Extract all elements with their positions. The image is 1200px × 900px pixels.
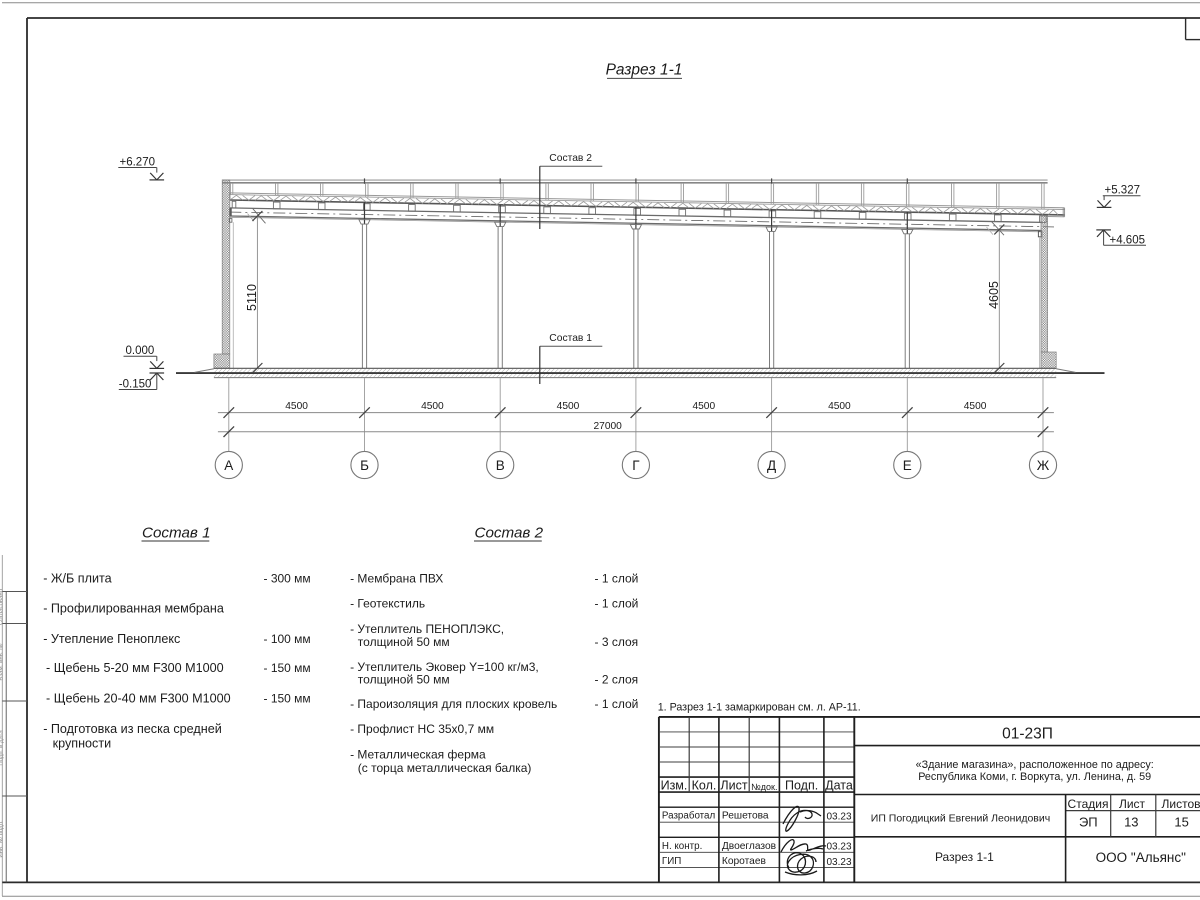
svg-text:ООО "Альянс": ООО "Альянс" [1096,850,1186,865]
svg-text:- 150 мм: - 150 мм [264,661,311,675]
svg-text:Двоеглазов: Двоеглазов [722,841,776,852]
svg-text:- Металлическая ферма: - Металлическая ферма [350,748,486,762]
svg-text:- Щебень 20-40 мм F300 М1000: - Щебень 20-40 мм F300 М1000 [46,692,231,706]
svg-text:А: А [224,458,233,473]
svg-text:4500: 4500 [421,401,444,412]
svg-text:27000: 27000 [594,421,623,432]
svg-text:4500: 4500 [557,401,580,412]
svg-text:- Профилированная мембрана: - Профилированная мембрана [43,602,224,616]
svg-text:Состав 2: Состав 2 [549,153,592,164]
svg-text:1. Разрез 1-1 замаркирован см.: 1. Разрез 1-1 замаркирован см. л. АР-11. [658,701,861,713]
svg-text:ГИП: ГИП [662,856,681,867]
svg-text:Лист: Лист [720,778,747,792]
svg-text:03.23: 03.23 [826,811,851,822]
svg-text:ЭП: ЭП [1079,814,1098,829]
svg-text:- Пароизоляция для плоских кро: - Пароизоляция для плоских кровель [350,697,557,711]
svg-text:крупности: крупности [53,737,112,751]
svg-text:03.23: 03.23 [826,842,851,853]
svg-text:- 1 слой: - 1 слой [595,697,639,711]
svg-text:Разрез 1-1: Разрез 1-1 [935,850,994,864]
svg-text:- Геотекстиль: - Геотекстиль [350,597,425,611]
svg-text:Инв. № подл.: Инв. № подл. [0,820,5,858]
svg-text:+4.605: +4.605 [1110,234,1146,246]
svg-text:4500: 4500 [285,401,308,412]
svg-text:4500: 4500 [692,401,715,412]
svg-text:(с торца металлическая балка): (с торца металлическая балка) [358,761,532,775]
svg-text:Подп.: Подп. [785,778,818,792]
svg-text:- Утеплитель ПЕНОПЛЭКС,: - Утеплитель ПЕНОПЛЭКС, [350,622,504,636]
svg-text:4500: 4500 [828,401,851,412]
svg-text:Стадия: Стадия [1068,797,1109,811]
svg-text:Ж: Ж [1037,458,1050,473]
svg-text:Листов: Листов [1162,797,1200,811]
svg-text:0.000: 0.000 [126,345,155,357]
svg-text:- Ж/Б плита: - Ж/Б плита [43,572,111,586]
svg-text:- 3 слоя: - 3 слоя [595,635,639,649]
svg-text:4605: 4605 [987,281,1001,309]
svg-text:Состав 1: Состав 1 [549,333,592,344]
svg-text:Состав 1: Состав 1 [142,525,211,542]
svg-text:В: В [496,458,505,473]
svg-text:- 100 мм: - 100 мм [264,632,311,646]
svg-text:Лист: Лист [1119,797,1146,811]
svg-text:№док.: №док. [751,782,777,792]
svg-text:- Профлист НС 35х0,7 мм: - Профлист НС 35х0,7 мм [350,722,494,736]
svg-text:толщиной 50 мм: толщиной 50 мм [358,673,450,687]
svg-text:13: 13 [1124,814,1138,829]
svg-text:- Щебень 5-20 мм F300 М1000: - Щебень 5-20 мм F300 М1000 [46,661,224,675]
svg-text:+6.270: +6.270 [120,156,156,168]
svg-text:15: 15 [1174,814,1188,829]
svg-text:Изм.: Изм. [661,778,688,792]
svg-text:- 1 слой: - 1 слой [595,572,639,586]
svg-text:Кол.: Кол. [692,778,717,792]
svg-text:Разрез 1-1: Разрез 1-1 [606,62,683,79]
svg-text:- Утепление Пеноплекс: - Утепление Пеноплекс [43,632,180,646]
svg-text:Коротаев: Коротаев [722,856,766,867]
svg-text:Д: Д [767,458,776,473]
svg-text:Подп. и дата: Подп. и дата [0,730,5,766]
svg-text:-0.150: -0.150 [119,378,152,390]
svg-text:толщиной 50 мм: толщиной 50 мм [358,635,450,649]
svg-text:Е: Е [903,458,912,473]
svg-text:- 300 мм: - 300 мм [264,572,311,586]
svg-text:4500: 4500 [964,401,987,412]
svg-text:Разработал: Разработал [662,811,716,822]
svg-text:03.23: 03.23 [826,857,851,868]
svg-text:01-23П: 01-23П [1002,725,1053,742]
svg-text:Б: Б [360,458,369,473]
svg-text:Н. контр.: Н. контр. [662,841,702,852]
svg-text:ИП Погодицкий Евгений Леонидов: ИП Погодицкий Евгений Леонидович [871,813,1050,825]
svg-text:- 1 слой: - 1 слой [595,597,639,611]
svg-text:+5.327: +5.327 [1105,185,1141,197]
svg-text:Республика Коми, г. Воркута, у: Республика Коми, г. Воркута, ул. Ленина,… [918,771,1151,783]
svg-text:«Здание магазина», расположенн: «Здание магазина», расположенное по адре… [916,759,1154,771]
svg-text:- Подготовка из песка средней: - Подготовка из песка средней [43,722,222,736]
svg-text:5110: 5110 [245,284,259,311]
svg-text:- 150 мм: - 150 мм [264,692,311,706]
svg-text:Согласовано: Согласовано [0,588,5,625]
svg-text:- Мембрана ПВХ: - Мембрана ПВХ [350,572,443,586]
svg-text:Состав 2: Состав 2 [475,525,544,542]
svg-text:Взам. инв. №: Взам. инв. № [0,643,5,680]
svg-text:Решетова: Решетова [722,811,769,822]
svg-text:Дата: Дата [825,778,853,792]
svg-text:Г: Г [632,458,640,473]
svg-text:- 2 слоя: - 2 слоя [595,673,639,687]
